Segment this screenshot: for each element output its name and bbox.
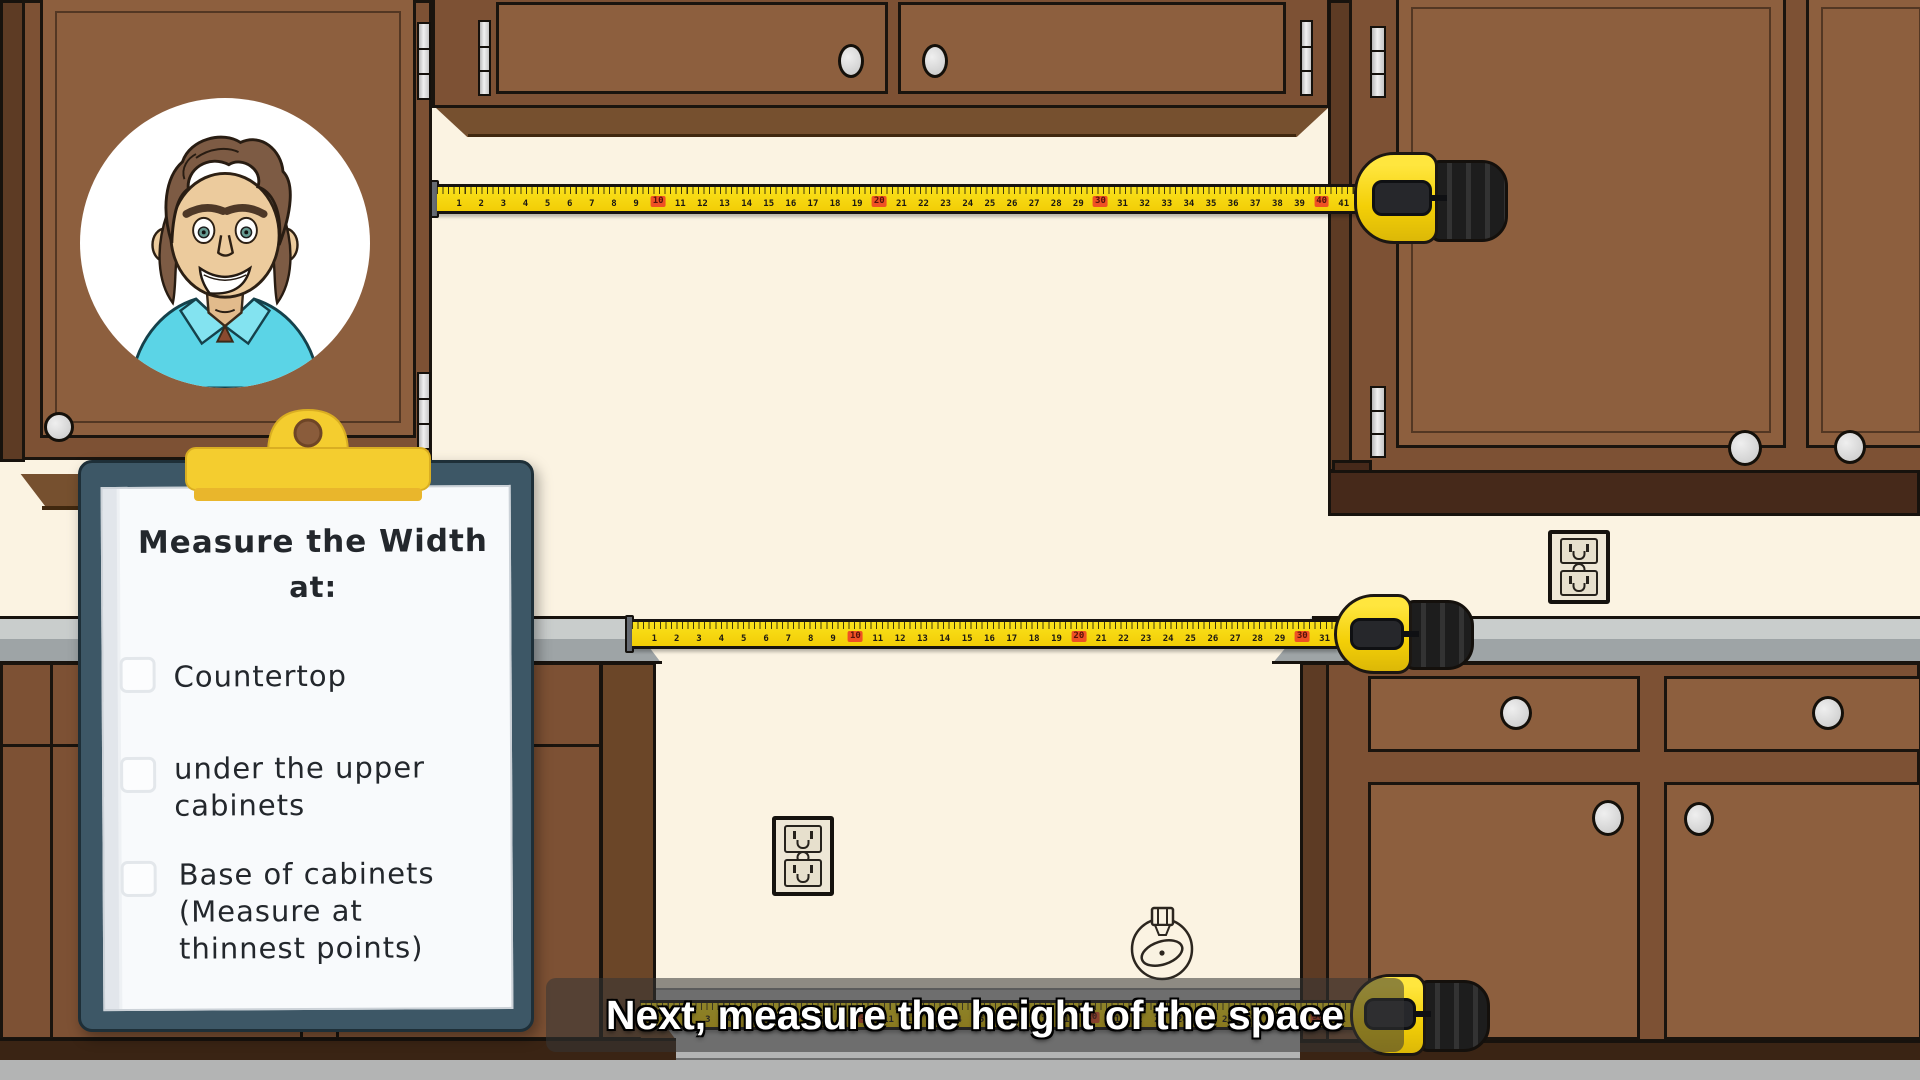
tape-number: 15 <box>962 634 973 645</box>
cabinet-hinge <box>1370 26 1386 98</box>
tape-number: 30 <box>1295 631 1310 642</box>
tape-housing-back <box>1430 160 1508 242</box>
cabinet-hinge <box>1370 386 1386 458</box>
tape-number: 38 <box>1272 199 1283 210</box>
kitchen-floor-strip <box>0 1058 1920 1080</box>
upper-cabinet-center-molding <box>436 108 1328 137</box>
tape-number: 27 <box>1230 634 1241 645</box>
upper-cabinet-center-door-right <box>898 2 1286 94</box>
tape-number: 19 <box>852 199 863 210</box>
tape-ticks <box>437 187 1357 194</box>
drawer-front <box>1664 676 1920 752</box>
tape-number: 31 <box>1319 634 1330 645</box>
tape-number: 18 <box>830 199 841 210</box>
tape-housing-clip <box>1350 618 1404 650</box>
tape-number: 39 <box>1294 199 1305 210</box>
tape-number: 3 <box>696 634 701 645</box>
tape-number: 9 <box>830 634 835 645</box>
tape-ticks <box>632 622 1338 629</box>
power-outlet <box>772 816 834 896</box>
tape-number: 31 <box>1117 199 1128 210</box>
upper-cabinet-right-bottom-rail <box>1328 470 1920 516</box>
checklist-item-under-upper-cabinets: under the upper cabinets <box>174 749 494 825</box>
tape-number: 20 <box>872 196 887 207</box>
tape-number: 5 <box>741 634 746 645</box>
subtitle-text: Next, measure the height of the space <box>546 978 1404 1052</box>
tape-number: 29 <box>1073 199 1084 210</box>
checkbox-base-of-cabinets <box>121 861 157 897</box>
checkbox-countertop <box>120 657 156 693</box>
cabinet-knob <box>1684 802 1714 836</box>
kitchen-scene: 1234567891011121314151617181920212223242… <box>0 0 1920 1080</box>
tape-number: 12 <box>895 634 906 645</box>
tape-number: 7 <box>786 634 791 645</box>
tape-number: 37 <box>1250 199 1261 210</box>
cabinet-knob <box>1812 696 1844 730</box>
tape-number: 19 <box>1051 634 1062 645</box>
cabinet-knob <box>1728 430 1762 466</box>
tape-measure-top: 1234567891011121314151617181920212223242… <box>437 184 1357 214</box>
clipboard-paper: Measure the Width at: Countertop under t… <box>101 485 514 1011</box>
tape-housing-clip <box>1372 180 1432 216</box>
tape-number: 11 <box>675 199 686 210</box>
tape-number: 22 <box>1118 634 1129 645</box>
molding-shadow <box>468 134 1296 137</box>
upper-cabinet-center-door-left <box>496 2 888 94</box>
cabinet-knob <box>44 412 74 442</box>
tape-number: 6 <box>567 199 572 210</box>
tape-number: 14 <box>939 634 950 645</box>
tape-number: 13 <box>917 634 928 645</box>
cabinet-hinge <box>417 22 431 100</box>
tape-number: 17 <box>1006 634 1017 645</box>
tape-number: 1 <box>456 199 461 210</box>
tape-number: 26 <box>1207 634 1218 645</box>
tape-number: 26 <box>1007 199 1018 210</box>
cabinet-hinge <box>1300 20 1313 96</box>
cabinet-frame-line <box>50 662 53 1040</box>
tape-number: 27 <box>1029 199 1040 210</box>
tape-number: 12 <box>697 199 708 210</box>
tape-number: 41 <box>1338 199 1349 210</box>
checklist-item-countertop: Countertop <box>174 657 504 695</box>
tape-number: 8 <box>611 199 616 210</box>
tape-number: 28 <box>1051 199 1062 210</box>
tape-number: 24 <box>962 199 973 210</box>
cabinet-knob <box>1592 800 1624 836</box>
cabinet-knob <box>922 44 948 78</box>
tape-number: 34 <box>1184 199 1195 210</box>
tape-number: 15 <box>763 199 774 210</box>
clipboard-title-line2: at: <box>133 569 493 605</box>
presenter-avatar <box>80 98 370 388</box>
tape-measure-middle: 1234567891011121314151617181920212223242… <box>632 619 1338 649</box>
tape-number: 29 <box>1274 634 1285 645</box>
tape-number: 7 <box>589 199 594 210</box>
tape-number: 21 <box>896 199 907 210</box>
tape-number: 25 <box>984 199 995 210</box>
tape-number: 8 <box>808 634 813 645</box>
tape-number: 30 <box>1093 196 1108 207</box>
tape-number: 10 <box>848 631 863 642</box>
tape-number: 16 <box>785 199 796 210</box>
tape-number: 2 <box>479 199 484 210</box>
tape-number: 16 <box>984 634 995 645</box>
tape-number: 17 <box>808 199 819 210</box>
tape-number: 3 <box>501 199 506 210</box>
door-panel-line <box>1821 7 1920 433</box>
tape-number: 2 <box>674 634 679 645</box>
tape-number: 36 <box>1228 199 1239 210</box>
cabinet-knob <box>1500 696 1532 730</box>
tape-number: 10 <box>651 196 666 207</box>
checklist-item-base-of-cabinets: Base of cabinets (Measure at thinnest po… <box>179 855 480 968</box>
tape-number: 22 <box>918 199 929 210</box>
clipboard-title: Measure the Width <box>133 523 493 561</box>
tape-number: 13 <box>719 199 730 210</box>
tape-number: 25 <box>1185 634 1196 645</box>
tape-number: 33 <box>1161 199 1172 210</box>
tape-number: 6 <box>763 634 768 645</box>
cabinet-knob <box>838 44 864 78</box>
tape-measure-badge-icon <box>1122 900 1202 988</box>
tape-number: 21 <box>1096 634 1107 645</box>
tape-number: 20 <box>1071 631 1086 642</box>
tape-number: 23 <box>940 199 951 210</box>
tape-number: 11 <box>872 634 883 645</box>
checkbox-under-upper-cabinets <box>120 757 156 793</box>
clipboard-clip <box>180 404 436 504</box>
tape-number: 28 <box>1252 634 1263 645</box>
tape-number: 35 <box>1206 199 1217 210</box>
cabinet-hinge <box>478 20 491 96</box>
power-outlet <box>1548 530 1610 604</box>
tape-number: 4 <box>523 199 528 210</box>
tape-number: 18 <box>1029 634 1040 645</box>
tape-number: 4 <box>719 634 724 645</box>
tape-number: 14 <box>741 199 752 210</box>
tape-number: 40 <box>1314 196 1329 207</box>
tape-number: 23 <box>1140 634 1151 645</box>
cabinet-knob <box>1834 430 1866 464</box>
tape-number: 1 <box>652 634 657 645</box>
tape-number: 24 <box>1163 634 1174 645</box>
tape-number: 5 <box>545 199 550 210</box>
tape-number: 9 <box>633 199 638 210</box>
upper-cabinet-right-door-right <box>1806 0 1920 448</box>
tape-number: 32 <box>1139 199 1150 210</box>
